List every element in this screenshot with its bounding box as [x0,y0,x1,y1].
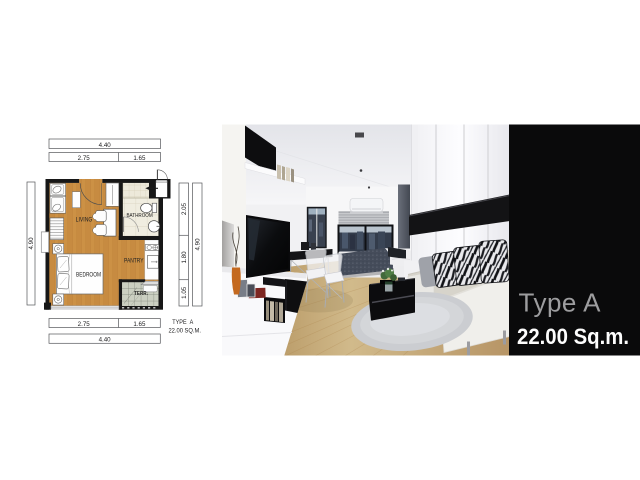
svg-text:4.40: 4.40 [99,142,112,149]
svg-text:22.00 SQ.M.: 22.00 SQ.M. [168,327,201,334]
svg-text:PANTRY: PANTRY [124,259,144,265]
svg-text:TERR.: TERR. [134,291,148,297]
svg-text:4.90: 4.90 [28,237,35,250]
svg-text:LIVING: LIVING [76,218,93,224]
svg-text:TYPE A: TYPE A [172,319,193,326]
svg-text:1.65: 1.65 [133,321,146,328]
svg-text:Type A: Type A [519,288,602,318]
svg-text:22.00 Sq.m.: 22.00 Sq.m. [517,324,629,349]
svg-text:1.65: 1.65 [133,155,146,162]
svg-text:BATHROOM: BATHROOM [126,213,153,219]
svg-text:4.90: 4.90 [194,238,201,251]
svg-text:4.40: 4.40 [99,337,112,344]
svg-text:2.05: 2.05 [181,202,188,215]
svg-text:BEDROOM: BEDROOM [76,272,101,278]
svg-text:1.80: 1.80 [181,251,188,264]
svg-text:2.75: 2.75 [78,321,91,328]
svg-text:1.05: 1.05 [181,286,188,299]
svg-text:2.75: 2.75 [78,155,91,162]
